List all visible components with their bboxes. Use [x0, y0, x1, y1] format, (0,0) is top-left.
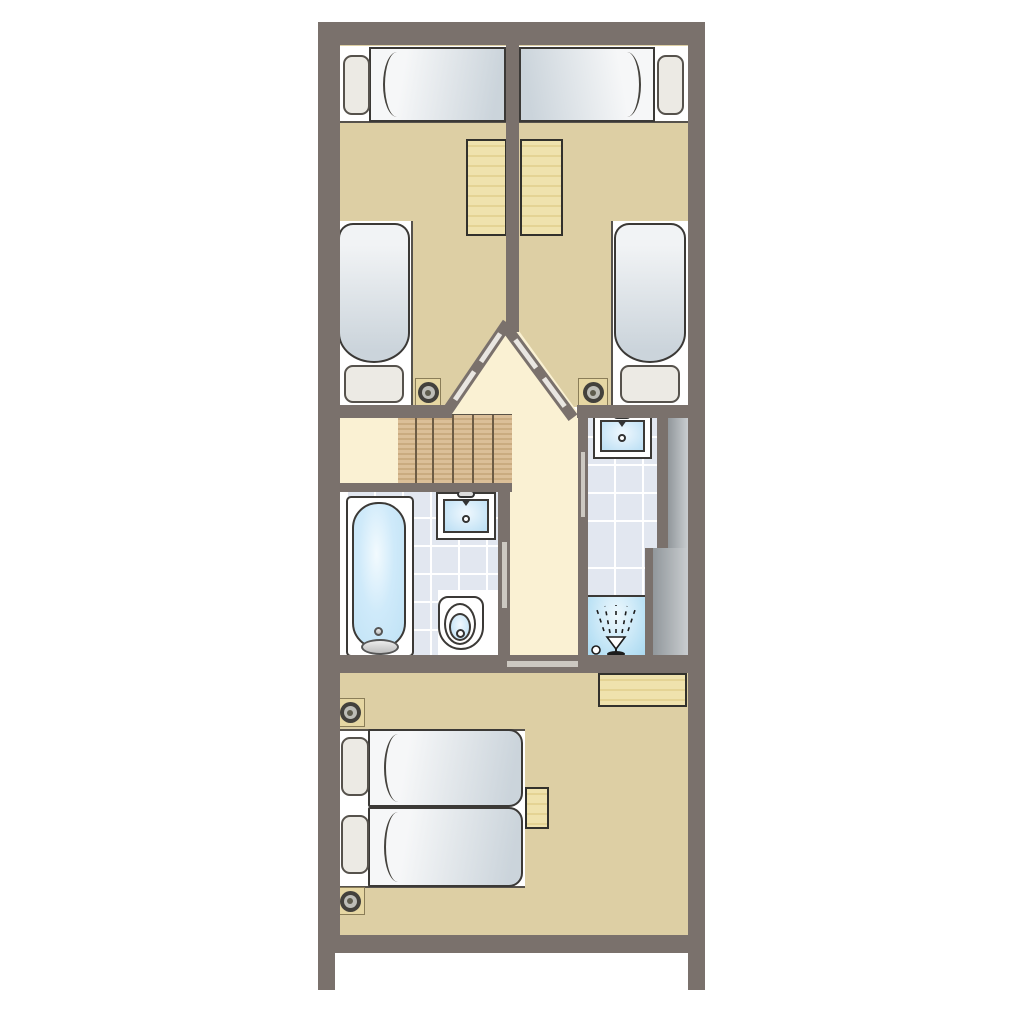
- drain-icon: [592, 646, 600, 654]
- pillow: [620, 365, 680, 403]
- duct-wall-lower: [645, 548, 653, 655]
- bedside-table: [525, 787, 549, 829]
- bathtub: [346, 496, 414, 657]
- outer-wall-bottom: [318, 935, 705, 953]
- stair-tread-line: [452, 415, 454, 483]
- washbasin-shower-room: [593, 413, 652, 459]
- sheet-fold-line: [384, 734, 412, 802]
- faucet-icon: [374, 627, 383, 636]
- bedroom-left-bottom-wall: [318, 405, 452, 418]
- faucet-spout-icon: [461, 499, 471, 506]
- pillow: [341, 815, 369, 874]
- desk-right-room: [520, 139, 563, 236]
- door-shower-room: [581, 452, 585, 517]
- floor-plan: [0, 0, 1024, 1024]
- toilet-flush-icon: [456, 629, 465, 638]
- stair-tread-line: [472, 415, 474, 483]
- outer-wall-top: [318, 22, 705, 45]
- drain-icon: [361, 639, 399, 655]
- service-duct-upper: [668, 412, 688, 548]
- toilet: [438, 596, 484, 650]
- pillow: [657, 55, 684, 115]
- bathroom-top-wall: [340, 483, 512, 492]
- outer-wall-stub-left: [318, 953, 335, 990]
- duct-wall-upper: [657, 412, 668, 548]
- pillow: [344, 365, 404, 403]
- sheet-fold-line: [613, 52, 641, 117]
- single-bed-left-top-mattress: [369, 47, 506, 122]
- bedroom-right-bottom-wall: [577, 405, 688, 418]
- pillow: [343, 55, 370, 115]
- ceiling-spotlight-icon: [578, 378, 608, 407]
- outer-wall-right: [688, 45, 705, 953]
- stair-tread-line: [492, 415, 494, 483]
- shower: [588, 595, 645, 657]
- faucet-spout-icon: [617, 420, 627, 427]
- hall-shower-room-wall: [578, 412, 588, 657]
- double-bedroom-top-wall: [318, 655, 705, 673]
- staircase: [398, 414, 512, 485]
- shower-spray-icon: [588, 597, 645, 657]
- outer-wall-stub-right: [688, 953, 705, 990]
- washbasin-bathroom: [436, 492, 496, 540]
- single-bed-left-duvet: [338, 223, 410, 363]
- stair-tread-line: [415, 415, 417, 483]
- door-double-bedroom: [507, 661, 578, 667]
- sheet-fold-line: [384, 812, 412, 882]
- sheet-fold-line: [383, 52, 411, 117]
- bathroom-hall-wall: [498, 483, 510, 657]
- desk-left-room: [466, 139, 507, 236]
- sideboard: [598, 673, 687, 707]
- drain-icon: [618, 434, 626, 442]
- centre-partition-wall: [506, 45, 519, 332]
- stair-tread-line: [432, 415, 434, 483]
- shower-room-tile-lower: [588, 548, 645, 595]
- single-bed-right-top-mattress: [519, 47, 655, 122]
- outer-wall-left: [318, 45, 340, 953]
- pillow: [341, 737, 369, 796]
- single-bed-right-duvet: [614, 223, 686, 363]
- door-bathroom: [502, 542, 507, 608]
- drain-icon: [462, 515, 470, 523]
- double-bed-mattress-lower: [368, 807, 523, 887]
- double-bed-mattress-upper: [368, 729, 523, 807]
- ceiling-spotlight-icon: [415, 378, 441, 407]
- service-duct-lower: [653, 548, 688, 655]
